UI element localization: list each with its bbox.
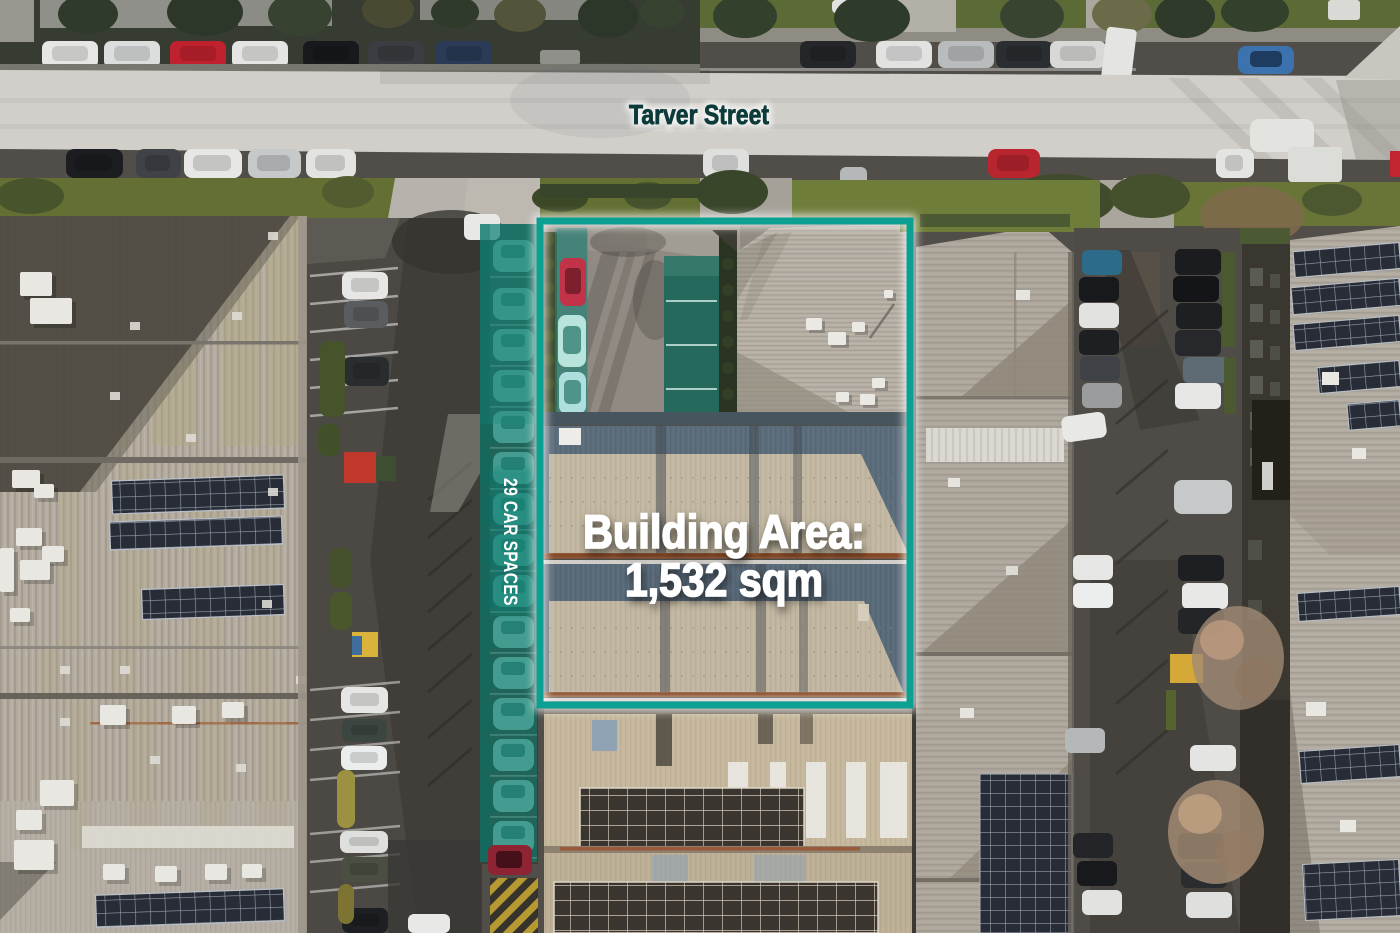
svg-text:1,532 sqm: 1,532 sqm [625,553,823,606]
svg-text:29 CAR SPACES: 29 CAR SPACES [499,478,520,606]
svg-text:Tarver Street: Tarver Street [629,99,769,130]
svg-text:Building Area:: Building Area: [583,505,865,558]
